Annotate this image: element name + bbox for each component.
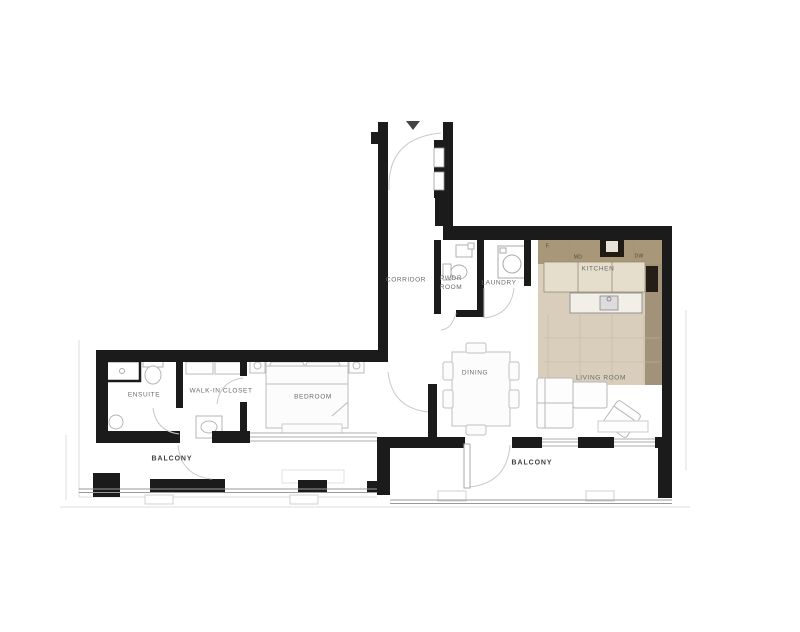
floorplan-canvas: CORRIDOR PWDR ROOM LAUNDRY KITCHEN DININ… bbox=[0, 0, 800, 632]
room-label-balcony-left: BALCONY bbox=[152, 454, 193, 463]
window-seat bbox=[282, 424, 342, 433]
room-label-balcony-right: BALCONY bbox=[512, 458, 553, 467]
room-label-kitchen: KITCHEN bbox=[582, 266, 615, 275]
appliance-label-microwave: MD bbox=[574, 255, 582, 262]
laundry-door-arc bbox=[484, 288, 514, 318]
ensuite-sink bbox=[109, 415, 123, 429]
room-label-ensuite: ENSUITE bbox=[128, 392, 160, 401]
right-balcony-door-arc bbox=[468, 445, 510, 487]
bedroom-door-arc bbox=[388, 372, 428, 412]
room-label-laundry: LAUNDRY bbox=[481, 280, 516, 289]
armchair bbox=[603, 400, 642, 439]
room-label-walk-in-closet: WALK-IN CLOSET bbox=[189, 388, 252, 397]
railing-post bbox=[150, 479, 225, 492]
oven bbox=[646, 266, 658, 292]
sofa-chaise bbox=[573, 382, 607, 408]
room-label-corridor: CORRIDOR bbox=[386, 277, 426, 286]
dining-furniture bbox=[443, 343, 519, 435]
appliance-label-dishwasher: DW bbox=[635, 254, 644, 261]
railing-post bbox=[658, 448, 672, 498]
entry-door-arc bbox=[389, 133, 441, 190]
balcony-pillar bbox=[93, 473, 120, 497]
appliance-label-fridge: F. bbox=[546, 244, 551, 251]
console-table bbox=[598, 421, 648, 432]
room-label-bedroom: BEDROOM bbox=[294, 394, 332, 403]
room-label-dining: DINING bbox=[462, 370, 488, 379]
toilet-bowl bbox=[145, 366, 161, 384]
pwdr-door-arc bbox=[441, 313, 456, 330]
entry-arrow-icon bbox=[406, 121, 420, 130]
island-sink bbox=[600, 296, 618, 310]
room-label-pwdr-room: PWDR ROOM bbox=[431, 275, 471, 293]
railing-post bbox=[298, 480, 327, 492]
room-label-living-room: LIVING ROOM bbox=[576, 375, 626, 384]
laundry-fixtures bbox=[498, 246, 526, 278]
living-room-furniture bbox=[537, 378, 648, 438]
right-balcony-door-leaf bbox=[464, 444, 470, 488]
dining-table bbox=[452, 352, 510, 426]
floorplan-drawing bbox=[0, 0, 800, 632]
ensuite-door-arc bbox=[153, 408, 179, 434]
